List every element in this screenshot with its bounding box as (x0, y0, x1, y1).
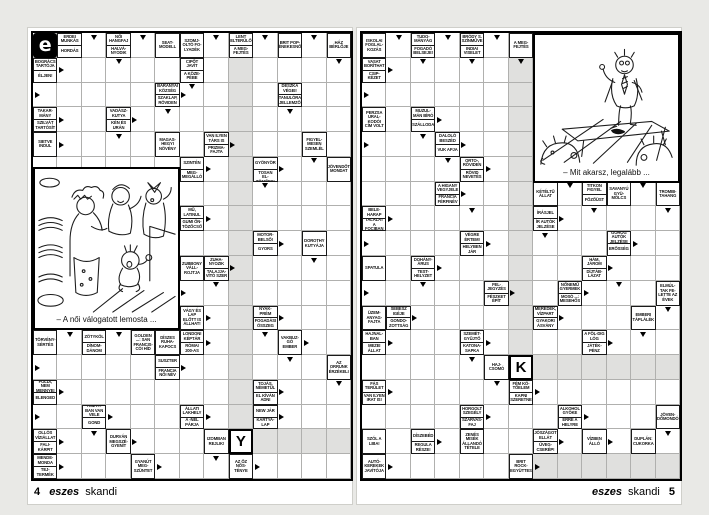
answer-cell[interactable] (582, 306, 606, 331)
arrow-down-icon (665, 307, 671, 312)
answer-cell[interactable] (302, 281, 326, 306)
answer-cell[interactable] (386, 107, 410, 132)
answer-cell[interactable] (411, 182, 435, 207)
answer-cell[interactable] (460, 256, 484, 281)
arrow-down-icon (469, 357, 475, 362)
solution-cell[interactable] (253, 429, 277, 454)
answer-cell[interactable] (460, 107, 484, 132)
clue-cell: SIETVE INDUL (33, 132, 57, 157)
answer-cell[interactable] (484, 454, 508, 479)
clue-cell: NŐNEMŰ GYERMEKMOSÓ ...: MESEHŐS (558, 281, 582, 306)
answer-cell[interactable] (302, 306, 326, 331)
answer-cell[interactable] (302, 206, 326, 231)
answer-cell[interactable] (327, 330, 351, 355)
solution-cell[interactable] (533, 355, 557, 380)
answer-cell[interactable] (484, 132, 508, 157)
answer-cell[interactable] (106, 380, 130, 405)
answer-cell[interactable] (253, 83, 277, 108)
solution-cell[interactable] (607, 355, 631, 380)
answer-cell[interactable] (484, 107, 508, 132)
answer-cell[interactable] (656, 256, 680, 281)
answer-cell[interactable] (362, 405, 386, 430)
clue-cell: TUDO-MÁNYÁGFOGADÓ BELSEJE! (411, 33, 435, 58)
clue-text: MOTOR-BELSŐ! (254, 232, 276, 243)
arrow-down-icon (262, 332, 268, 337)
answer-cell[interactable] (180, 182, 204, 207)
right-page: – Mit akarsz, legalább ... ISKOLAI FOGLA… (356, 27, 682, 505)
clue-text: JÖVENDŐT MONDAT (328, 158, 350, 181)
solution-cell[interactable] (607, 454, 631, 479)
arrow-right-icon (206, 216, 211, 222)
answer-cell[interactable] (484, 83, 508, 108)
solution-cell[interactable] (509, 182, 533, 207)
clue-text: DOHÁNY-ÁRUS (412, 257, 434, 268)
clue-text: DOROTHY KUTYÁJA (303, 232, 325, 255)
arrow-right-icon (608, 439, 613, 445)
clue-text: DALOLÓ BESZÉD (436, 133, 458, 144)
answer-cell[interactable] (386, 256, 410, 281)
solution-cell[interactable] (229, 405, 253, 430)
arrow-down-icon (567, 183, 573, 188)
answer-cell[interactable] (302, 58, 326, 83)
answer-cell[interactable] (327, 206, 351, 231)
answer-cell[interactable] (302, 405, 326, 430)
arrow-right-icon (535, 389, 540, 395)
answer-cell[interactable] (509, 405, 533, 430)
clue-text: FÉSZKET ÉPÍT (485, 293, 507, 305)
clue-text: DÍNOM-DÁNOM (83, 342, 105, 354)
answer-cell[interactable] (204, 380, 228, 405)
solution-cell[interactable] (229, 306, 253, 331)
answer-cell[interactable] (327, 454, 351, 479)
answer-cell[interactable] (155, 429, 179, 454)
clue-text: MOSÓ ...: MESEHŐS (559, 293, 581, 305)
answer-cell[interactable] (362, 355, 386, 380)
answer-cell[interactable] (411, 330, 435, 355)
answer-cell[interactable] (82, 454, 106, 479)
arrow-right-icon (486, 340, 491, 346)
answer-cell[interactable] (435, 231, 459, 256)
clue-text: SZEMÉT-GYŰJTŐ (461, 331, 483, 342)
solution-cell[interactable] (229, 330, 253, 355)
solution-cell[interactable] (229, 231, 253, 256)
answer-cell[interactable] (302, 380, 326, 405)
clue-text: DUPLÁN: CUKORKA (632, 430, 654, 453)
answer-cell[interactable] (558, 330, 582, 355)
answer-cell[interactable] (386, 83, 410, 108)
answer-cell[interactable] (435, 206, 459, 231)
solution-cell[interactable] (229, 206, 253, 231)
arrow-right-icon (59, 142, 64, 148)
solution-cell[interactable] (509, 330, 533, 355)
answer-cell[interactable] (435, 355, 459, 380)
clue-text: SUSZTER (156, 356, 178, 367)
clue-cell: DUPLÁN: CUKORKA (631, 429, 655, 454)
clue-text: LONDONI KÉPTÁR (181, 331, 203, 342)
given-letter-cell[interactable]: Y (229, 429, 253, 454)
clue-cell: A HIGANY VEGYJELEFRANCIA FÉRFINÉV (435, 182, 459, 207)
clue-cell: DOHÁNY-ÁRUSTEST-HELYZET (411, 256, 435, 281)
answer-cell[interactable] (484, 206, 508, 231)
clue-cell: GOLDEN ...: SAN FRANCIS-CÓI HÍD (131, 330, 155, 355)
clue-text: DURVÁN MEGSZÉ-GYENÍT (107, 430, 129, 453)
answer-cell[interactable] (253, 281, 277, 306)
given-letter-cell[interactable]: K (509, 355, 533, 380)
arrow-right-icon (437, 265, 442, 271)
answer-cell[interactable] (57, 355, 81, 380)
answer-cell[interactable] (327, 281, 351, 306)
left-page-number: 4 (34, 486, 40, 498)
answer-cell[interactable] (204, 231, 228, 256)
answer-cell[interactable] (484, 58, 508, 83)
arrow-down-icon (189, 84, 195, 89)
clue-text: HÁM, JÁROM (583, 257, 605, 268)
answer-cell[interactable] (131, 405, 155, 430)
answer-cell[interactable] (106, 83, 130, 108)
arrow-right-icon (108, 414, 113, 420)
answer-cell[interactable] (631, 405, 655, 430)
answer-cell[interactable] (411, 405, 435, 430)
answer-cell[interactable] (253, 58, 277, 83)
clue-text: KÁRTYA-LAP (254, 417, 276, 429)
answer-cell[interactable] (82, 355, 106, 380)
clue-text: ÁLLATI LAKHELY (181, 406, 203, 417)
clue-cell: AZ ŐZ NŐS-TÉNYE (229, 454, 253, 479)
answer-cell[interactable] (82, 380, 106, 405)
answer-cell[interactable] (411, 206, 435, 231)
answer-cell[interactable] (656, 330, 680, 355)
answer-cell[interactable] (607, 405, 631, 430)
answer-cell[interactable] (253, 256, 277, 281)
answer-cell[interactable] (302, 83, 326, 108)
answer-cell[interactable] (411, 380, 435, 405)
answer-cell[interactable] (484, 256, 508, 281)
answer-cell[interactable] (131, 132, 155, 157)
arrow-right-icon (486, 414, 491, 420)
answer-cell[interactable] (131, 83, 155, 108)
answer-cell[interactable] (327, 306, 351, 331)
answer-cell[interactable] (435, 454, 459, 479)
arrow-down-icon (91, 431, 97, 436)
solution-cell[interactable] (582, 454, 606, 479)
answer-cell[interactable] (386, 132, 410, 157)
answer-cell[interactable] (302, 355, 326, 380)
answer-cell[interactable] (278, 281, 302, 306)
answer-cell[interactable] (656, 231, 680, 256)
solution-cell[interactable] (229, 58, 253, 83)
clue-cell: ORTO-, RÖVIDENRÖVID NEVETÉS (460, 157, 484, 182)
solution-cell[interactable] (631, 454, 655, 479)
solution-cell[interactable] (229, 281, 253, 306)
answer-cell[interactable] (386, 182, 410, 207)
clue-text: ORTO-, RÖVIDEN (461, 158, 483, 169)
solution-cell[interactable] (229, 157, 253, 182)
answer-cell[interactable] (155, 405, 179, 430)
clue-text: HELYBEN JÁR (461, 243, 483, 255)
answer-cell[interactable] (386, 355, 410, 380)
clue-text: BRIT ROCK-EGYÜTTES (510, 455, 532, 478)
solution-cell[interactable] (278, 429, 302, 454)
answer-cell[interactable] (180, 132, 204, 157)
solution-cell[interactable] (631, 355, 655, 380)
answer-cell[interactable] (509, 429, 533, 454)
answer-cell[interactable] (253, 107, 277, 132)
answer-cell[interactable] (180, 429, 204, 454)
clue-text: BRÓDY S. SZÍNMŰVE (461, 34, 483, 45)
answer-cell[interactable] (460, 281, 484, 306)
answer-cell[interactable] (204, 182, 228, 207)
arrow-down-icon (445, 35, 451, 40)
solution-cell[interactable] (509, 132, 533, 157)
clue-cell: VÍZBEN ÁLLÓ (582, 429, 606, 454)
clue-text: FALI-KÁRPIT (34, 441, 56, 453)
answer-cell[interactable] (386, 157, 410, 182)
answer-cell[interactable] (484, 306, 508, 331)
answer-cell[interactable] (582, 380, 606, 405)
clue-cell: SEBÉSZ IGÉJEGONDO-ZOTTSÁG (386, 306, 410, 331)
answer-cell[interactable] (82, 107, 106, 132)
arrow-right-icon (608, 265, 613, 271)
solution-cell[interactable] (558, 355, 582, 380)
arrow-down-icon (262, 35, 268, 40)
solution-cell[interactable] (509, 83, 533, 108)
answer-cell[interactable] (278, 206, 302, 231)
clue-text: TOJÁS, NÉMETÜL (254, 381, 276, 392)
arrow-down-icon (311, 158, 317, 163)
clue-text: EMBERI TÁPLÁLÉK (632, 307, 654, 330)
answer-cell[interactable] (607, 380, 631, 405)
answer-cell[interactable] (131, 380, 155, 405)
arrow-down-icon (213, 456, 219, 461)
clue-cell: JÓSZÁGOT ELLÁTÜVEG-CSERÉP! (533, 429, 557, 454)
answer-cell[interactable] (484, 429, 508, 454)
answer-cell[interactable] (253, 206, 277, 231)
clue-cell: TAKAR-MÁNYSZILVÁT TARTÓSÍT (33, 107, 57, 132)
answer-cell[interactable] (582, 231, 606, 256)
answer-cell[interactable] (631, 206, 655, 231)
clue-cell: VASAT BORÍTHATCSIP-KÉZET (362, 58, 386, 83)
solution-cell[interactable] (656, 454, 680, 479)
clue-text: CIPŐT JAVÍT (181, 59, 203, 70)
solution-cell[interactable] (509, 231, 533, 256)
arrow-down-icon (640, 332, 646, 337)
answer-cell[interactable] (607, 306, 631, 331)
clue-cell: BARANYAI KÖZSÉGSZAKLAP, RÖVIDEN (155, 83, 179, 108)
solution-cell[interactable] (229, 355, 253, 380)
answer-cell[interactable] (362, 182, 386, 207)
clue-cell: MUZUL-MÁN BÍRÓSZÁLLODA (411, 107, 435, 132)
solution-cell[interactable] (327, 429, 351, 454)
arrow-down-icon (311, 258, 317, 263)
arrow-down-icon (336, 59, 342, 64)
answer-cell[interactable] (386, 405, 410, 430)
answer-cell[interactable] (460, 380, 484, 405)
answer-cell[interactable] (558, 380, 582, 405)
arrow-right-icon (461, 142, 466, 148)
answer-cell[interactable] (327, 256, 351, 281)
answer-cell[interactable] (327, 83, 351, 108)
clue-cell: A FÖL-DIG LÓGJÁTÉK-PÉNZ (582, 330, 606, 355)
answer-cell[interactable] (204, 58, 228, 83)
answer-cell[interactable] (106, 454, 130, 479)
clue-cell: JÖVENDŐT MONDAT (327, 157, 351, 182)
answer-cell[interactable] (411, 83, 435, 108)
answer-cell[interactable] (411, 231, 435, 256)
clue-text: MEG-MEGÁLLÓ (181, 169, 203, 181)
answer-cell[interactable] (386, 281, 410, 306)
answer-cell[interactable] (558, 231, 582, 256)
answer-cell[interactable] (57, 83, 81, 108)
answer-cell[interactable] (435, 281, 459, 306)
arrow-right-icon (388, 216, 393, 222)
arrow-down-icon (311, 35, 317, 40)
arrow-right-icon (132, 439, 137, 445)
answer-cell[interactable] (278, 454, 302, 479)
clue-cell: BRÓDY S. SZÍNMŰVEINDIAI VISELET (460, 33, 484, 58)
answer-cell[interactable] (302, 182, 326, 207)
answer-cell[interactable] (180, 107, 204, 132)
arrow-right-icon (255, 464, 260, 470)
answer-cell[interactable] (131, 58, 155, 83)
answer-cell[interactable] (435, 58, 459, 83)
answer-cell[interactable] (253, 355, 277, 380)
answer-cell[interactable] (435, 83, 459, 108)
solution-cell[interactable] (656, 355, 680, 380)
solution-cell[interactable] (229, 107, 253, 132)
answer-cell[interactable] (631, 281, 655, 306)
brand-name: eszes (49, 486, 79, 498)
clue-cell: NEW JÁRKÁRTYA-LAP (253, 405, 277, 430)
clue-text: FEL-JEGYZÉS (485, 282, 507, 293)
answer-cell[interactable] (327, 405, 351, 430)
answer-cell[interactable] (631, 380, 655, 405)
clue-cell: ÍRÁSJELÍR AUTÓK JELZÉSE (533, 206, 557, 231)
answer-cell[interactable] (180, 380, 204, 405)
answer-cell[interactable] (607, 206, 631, 231)
solution-cell[interactable] (582, 355, 606, 380)
arrow-right-icon (206, 414, 211, 420)
answer-cell[interactable] (533, 405, 557, 430)
clue-cell: ISKOLAI FOGLAL-KOZÁS (362, 33, 386, 58)
arrow-down-icon (91, 35, 97, 40)
answer-cell[interactable] (533, 256, 557, 281)
answer-cell[interactable] (131, 355, 155, 380)
clue-text: MAGAS-HEGYI NÖVÉNY (156, 133, 178, 156)
answer-cell[interactable] (460, 83, 484, 108)
solution-cell[interactable] (558, 454, 582, 479)
arrow-right-icon (412, 315, 417, 321)
answer-cell[interactable] (204, 107, 228, 132)
answer-cell[interactable] (155, 58, 179, 83)
clue-text: ZÖTYKÖL (83, 331, 105, 342)
answer-cell[interactable] (386, 231, 410, 256)
clue-text: KAPNI SZERETNE (510, 392, 532, 404)
answer-cell[interactable] (460, 306, 484, 331)
answer-cell[interactable] (411, 157, 435, 182)
solution-cell[interactable] (509, 107, 533, 132)
arrow-right-icon (181, 290, 186, 296)
clue-text: NŐNEMŰ GYERMEK (559, 282, 581, 293)
answer-cell[interactable] (656, 380, 680, 405)
answer-cell[interactable] (460, 454, 484, 479)
answer-cell[interactable] (327, 231, 351, 256)
answer-cell[interactable] (435, 306, 459, 331)
solution-cell[interactable] (229, 83, 253, 108)
answer-cell[interactable] (253, 132, 277, 157)
clue-text: FRANCIA FÉRFINÉV (436, 194, 458, 206)
clue-text: TEST-HELYZET (412, 268, 434, 280)
arrow-down-icon (420, 59, 426, 64)
answer-cell[interactable] (327, 182, 351, 207)
answer-cell[interactable] (302, 107, 326, 132)
answer-cell[interactable] (278, 256, 302, 281)
answer-cell[interactable] (82, 132, 106, 157)
answer-cell[interactable] (386, 429, 410, 454)
clue-cell: HÁZ BÉRLŐJE (327, 33, 351, 58)
answer-cell[interactable] (631, 256, 655, 281)
answer-cell[interactable] (278, 58, 302, 83)
answer-cell[interactable] (411, 355, 435, 380)
answer-cell[interactable] (106, 355, 130, 380)
clue-cell: VÉGRE ÉRTEM!HELYBEN JÁR (460, 231, 484, 256)
answer-cell[interactable] (435, 405, 459, 430)
clue-text: GYANÚT MEG-SZÜNTET (132, 455, 154, 478)
answer-cell[interactable] (82, 58, 106, 83)
clue-cell: BOGRÁCS TARTÓJAÉLJEN! (33, 58, 57, 83)
clue-cell: ZUHA-NYOZIKTALAJJA-VÍTÓ SZER (204, 256, 228, 281)
clue-cell: GÖRÖG AUTÓK JELZÉSEERŐSSÉG (607, 231, 631, 256)
answer-cell[interactable] (435, 380, 459, 405)
solution-cell[interactable] (509, 306, 533, 331)
arrow-right-icon (437, 117, 442, 123)
answer-cell[interactable] (57, 405, 81, 430)
clue-text: FIGYEL-MESEN SZEMLÉL (303, 133, 325, 156)
answer-cell[interactable] (411, 454, 435, 479)
clue-cell: SUSZTERFRANCIA NŐI NÉV (155, 355, 179, 380)
answer-cell[interactable] (362, 157, 386, 182)
answer-cell[interactable] (204, 83, 228, 108)
solution-cell[interactable] (509, 157, 533, 182)
answer-cell[interactable] (533, 281, 557, 306)
answer-cell[interactable] (82, 83, 106, 108)
answer-cell[interactable] (278, 182, 302, 207)
solution-cell[interactable] (509, 256, 533, 281)
clue-cell: SAVANYÚ GYÜ-MÖLCS (607, 182, 631, 207)
answer-cell[interactable] (435, 330, 459, 355)
answer-cell[interactable] (180, 454, 204, 479)
answer-cell[interactable] (180, 231, 204, 256)
solution-cell[interactable] (229, 380, 253, 405)
solution-cell[interactable] (302, 429, 326, 454)
answer-cell[interactable] (278, 132, 302, 157)
solution-cell[interactable] (229, 182, 253, 207)
answer-cell[interactable] (327, 107, 351, 132)
answer-cell[interactable] (484, 182, 508, 207)
answer-cell[interactable] (302, 454, 326, 479)
clue-text: FOKOZA-TOSAN EL-TÖMŐDIK (254, 169, 276, 181)
answer-cell[interactable] (533, 330, 557, 355)
arrow-right-icon (35, 365, 40, 371)
solution-cell[interactable] (509, 206, 533, 231)
answer-cell[interactable] (558, 256, 582, 281)
answer-cell[interactable] (327, 132, 351, 157)
answer-cell[interactable] (204, 355, 228, 380)
right-cartoon-panel: – Mit akarsz, legalább ... (533, 33, 680, 183)
arrow-down-icon (213, 35, 219, 40)
answer-cell[interactable] (155, 380, 179, 405)
clue-text: GYAKORI ÁSVÁNY (534, 317, 556, 329)
clue-text: VASAT BORÍTHAT (363, 59, 385, 70)
